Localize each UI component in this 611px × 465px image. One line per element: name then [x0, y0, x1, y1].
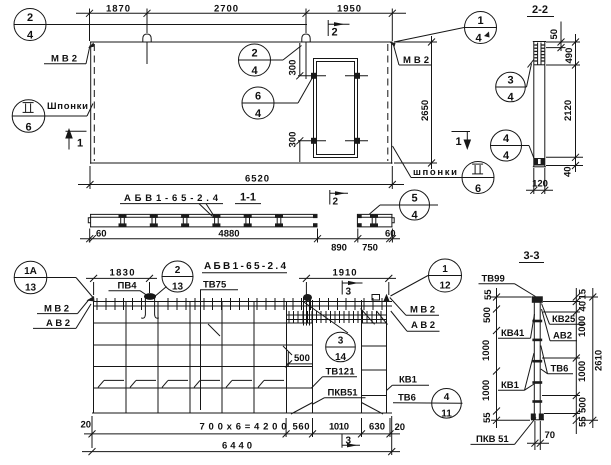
svg-text:630: 630	[369, 422, 385, 433]
svg-text:Шпонки: Шпонки	[47, 101, 88, 112]
svg-text:1000: 1000	[577, 361, 588, 382]
svg-text:4: 4	[27, 30, 34, 42]
svg-text:3: 3	[507, 75, 513, 87]
svg-text:5: 5	[411, 193, 417, 205]
svg-text:КВ1: КВ1	[399, 375, 418, 386]
svg-text:4: 4	[503, 133, 510, 145]
svg-text:300: 300	[288, 60, 299, 76]
svg-text:6: 6	[25, 122, 31, 134]
svg-text:4: 4	[503, 150, 510, 162]
svg-text:1830: 1830	[110, 268, 135, 279]
svg-text:4: 4	[475, 33, 482, 45]
svg-text:2: 2	[332, 27, 338, 39]
svg-text:ТВ6: ТВ6	[398, 393, 416, 404]
svg-text:55: 55	[483, 289, 494, 300]
svg-text:1000: 1000	[481, 340, 492, 361]
svg-text:13: 13	[25, 283, 37, 294]
svg-text:6: 6	[255, 91, 261, 103]
svg-text:11: 11	[441, 408, 452, 419]
svg-text:12: 12	[439, 281, 451, 292]
svg-text:3: 3	[346, 436, 352, 447]
svg-text:40: 40	[578, 301, 589, 312]
svg-text:20: 20	[395, 422, 406, 433]
svg-text:КВ25: КВ25	[552, 314, 576, 325]
svg-text:1000: 1000	[481, 380, 492, 401]
svg-text:40: 40	[563, 166, 574, 177]
svg-text:2: 2	[251, 48, 257, 60]
svg-text:2700: 2700	[214, 4, 238, 15]
svg-text:1870: 1870	[106, 4, 130, 15]
svg-text:1010: 1010	[329, 422, 349, 433]
svg-text:50: 50	[549, 29, 560, 40]
svg-text:МВ2: МВ2	[410, 305, 435, 316]
svg-text:ТВ75: ТВ75	[203, 280, 227, 291]
svg-text:4880: 4880	[218, 229, 239, 240]
svg-text:750: 750	[362, 243, 378, 254]
svg-text:4: 4	[444, 392, 450, 403]
svg-text:АВ2: АВ2	[411, 320, 435, 331]
svg-text:МВ2: МВ2	[51, 54, 77, 65]
svg-text:500: 500	[482, 307, 493, 323]
svg-text:4: 4	[251, 65, 258, 77]
svg-text:1000: 1000	[577, 316, 588, 337]
svg-text:3-3: 3-3	[524, 250, 540, 262]
svg-text:ПВ4: ПВ4	[118, 281, 138, 292]
svg-text:4: 4	[411, 210, 418, 222]
svg-text:1: 1	[477, 15, 483, 27]
svg-text:6520: 6520	[245, 174, 269, 185]
svg-text:60: 60	[385, 229, 396, 240]
svg-text:ПКВ 51: ПКВ 51	[476, 434, 509, 445]
svg-text:МВ2: МВ2	[403, 55, 429, 66]
svg-text:890: 890	[331, 243, 347, 254]
svg-text:шпонки: шпонки	[413, 167, 457, 178]
svg-text:ПКВ51: ПКВ51	[328, 388, 359, 399]
svg-text:1: 1	[456, 136, 462, 148]
svg-text:КВ41: КВ41	[501, 328, 525, 339]
svg-text:ТВ99: ТВ99	[482, 274, 505, 285]
svg-text:2: 2	[175, 265, 181, 276]
svg-text:КВ1: КВ1	[501, 380, 520, 391]
svg-text:2-2: 2-2	[532, 4, 548, 16]
svg-text:2: 2	[333, 197, 339, 208]
svg-text:1950: 1950	[337, 4, 361, 15]
svg-text:1-1: 1-1	[240, 192, 256, 204]
svg-text:1: 1	[442, 264, 448, 275]
svg-text:1А: 1А	[24, 266, 37, 277]
svg-text:490: 490	[564, 48, 575, 64]
svg-text:2120: 2120	[563, 100, 574, 121]
svg-text:60: 60	[96, 229, 107, 240]
svg-text:55: 55	[578, 416, 589, 427]
svg-text:3: 3	[338, 336, 344, 347]
svg-text:20: 20	[81, 420, 92, 431]
svg-text:70: 70	[545, 430, 556, 441]
svg-text:4: 4	[255, 108, 262, 120]
svg-text:4: 4	[507, 92, 514, 104]
svg-text:500: 500	[294, 353, 310, 364]
svg-text:АВ2: АВ2	[46, 318, 70, 329]
svg-text:ТВ121: ТВ121	[326, 367, 356, 378]
svg-text:14: 14	[335, 352, 347, 363]
svg-text:15: 15	[578, 288, 589, 299]
svg-text:3: 3	[346, 287, 352, 298]
svg-text:1: 1	[77, 138, 83, 150]
svg-text:500: 500	[578, 397, 589, 413]
svg-text:2650: 2650	[420, 100, 431, 121]
svg-text:АВ2: АВ2	[553, 331, 572, 342]
svg-text:560: 560	[293, 422, 310, 433]
svg-text:ТВ6: ТВ6	[551, 364, 569, 375]
svg-text:1910: 1910	[333, 268, 357, 279]
svg-text:6: 6	[475, 183, 481, 195]
svg-text:МВ2: МВ2	[44, 304, 69, 315]
svg-text:120: 120	[532, 179, 548, 190]
svg-text:55: 55	[482, 412, 493, 423]
svg-text:300: 300	[288, 132, 299, 148]
svg-text:2: 2	[27, 12, 33, 24]
svg-text:13: 13	[172, 282, 184, 293]
svg-text:2610: 2610	[594, 350, 605, 371]
